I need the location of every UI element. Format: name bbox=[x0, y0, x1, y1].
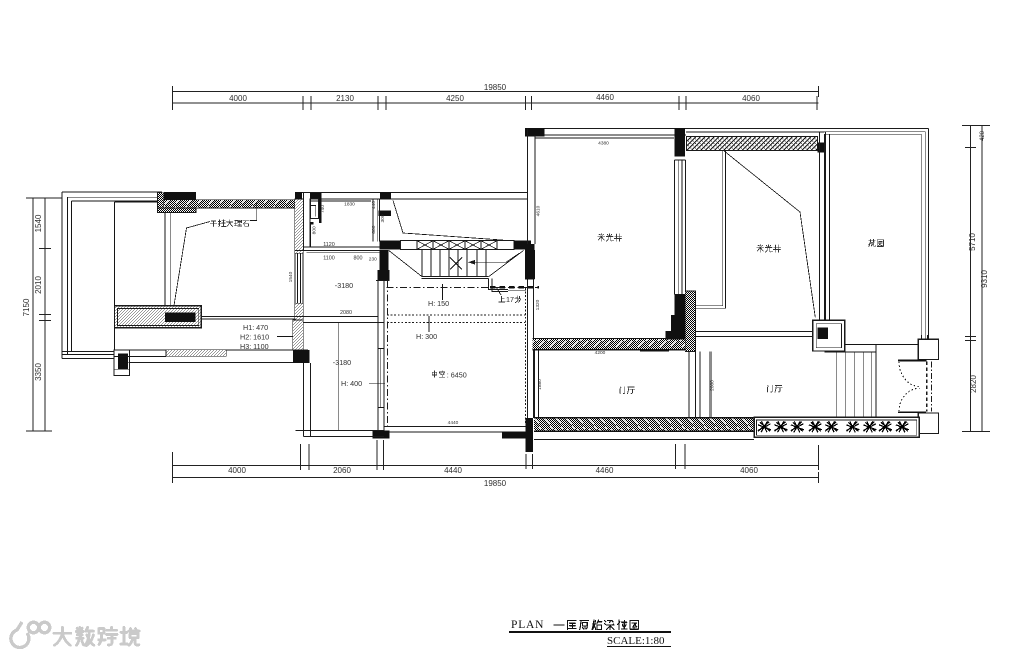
svg-text:SCALE:1:80: SCALE:1:80 bbox=[607, 635, 665, 647]
svg-text:4000: 4000 bbox=[228, 466, 246, 475]
svg-text:17: 17 bbox=[506, 295, 514, 304]
svg-text:2130: 2130 bbox=[336, 94, 354, 103]
svg-text:2060: 2060 bbox=[333, 466, 351, 475]
svg-text:-3180: -3180 bbox=[333, 358, 351, 367]
svg-text:1100: 1100 bbox=[323, 256, 335, 262]
svg-text:PLAN: PLAN bbox=[511, 619, 544, 631]
svg-text:H1: 470: H1: 470 bbox=[243, 323, 268, 332]
svg-text:: 6450: : 6450 bbox=[447, 371, 467, 380]
svg-text:H: 300: H: 300 bbox=[416, 332, 437, 341]
svg-text:4250: 4250 bbox=[446, 94, 464, 103]
svg-text:H: 400: H: 400 bbox=[341, 379, 362, 388]
svg-text:2000: 2000 bbox=[710, 380, 716, 391]
svg-text:4440: 4440 bbox=[448, 420, 459, 426]
svg-text:4060: 4060 bbox=[742, 94, 760, 103]
svg-text:860: 860 bbox=[371, 225, 377, 233]
svg-text:5710: 5710 bbox=[968, 233, 977, 251]
svg-text:4610: 4610 bbox=[536, 205, 542, 216]
svg-text:4460: 4460 bbox=[596, 93, 614, 102]
svg-text:1540: 1540 bbox=[34, 214, 43, 232]
svg-text:1120: 1120 bbox=[323, 242, 335, 248]
svg-text:19850: 19850 bbox=[484, 479, 507, 488]
svg-text:420: 420 bbox=[980, 130, 986, 141]
svg-text:-3180: -3180 bbox=[335, 281, 353, 290]
svg-text:4060: 4060 bbox=[740, 466, 758, 475]
svg-text:4200: 4200 bbox=[595, 350, 606, 356]
svg-text:230: 230 bbox=[369, 257, 377, 263]
svg-text:2080: 2080 bbox=[340, 310, 352, 316]
svg-text:800: 800 bbox=[354, 256, 363, 262]
svg-text:440: 440 bbox=[371, 201, 377, 209]
svg-text:1320: 1320 bbox=[535, 299, 541, 310]
svg-text:4000: 4000 bbox=[229, 94, 247, 103]
svg-text:4380: 4380 bbox=[598, 141, 609, 147]
svg-text:3350: 3350 bbox=[34, 363, 43, 381]
svg-text:1540: 1540 bbox=[288, 271, 294, 282]
svg-text:4460: 4460 bbox=[596, 466, 614, 475]
svg-text:4440: 4440 bbox=[444, 466, 462, 475]
svg-text:300: 300 bbox=[380, 214, 386, 222]
svg-text:1830: 1830 bbox=[344, 201, 355, 207]
svg-text:2820: 2820 bbox=[969, 375, 978, 393]
svg-text:7150: 7150 bbox=[22, 298, 31, 316]
svg-text:740: 740 bbox=[320, 205, 326, 213]
svg-text:9310: 9310 bbox=[980, 270, 989, 288]
svg-text:H3: 1100: H3: 1100 bbox=[240, 342, 269, 351]
svg-text:H: 150: H: 150 bbox=[428, 299, 449, 308]
svg-text:19850: 19850 bbox=[484, 83, 507, 92]
svg-text:2010: 2010 bbox=[34, 276, 43, 294]
svg-text:1880: 1880 bbox=[537, 379, 543, 390]
svg-text:800: 800 bbox=[312, 226, 318, 234]
svg-text:H2: 1610: H2: 1610 bbox=[240, 333, 269, 342]
